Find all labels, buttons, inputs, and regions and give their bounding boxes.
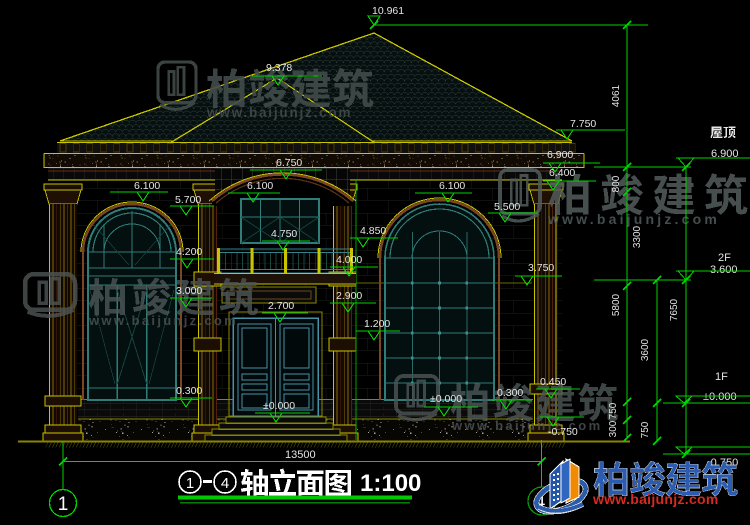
svg-text:3.000: 3.000 xyxy=(176,285,202,297)
svg-text:750: 750 xyxy=(640,421,651,438)
svg-text:www.baijunjz.com: www.baijunjz.com xyxy=(206,105,352,120)
svg-text:6.100: 6.100 xyxy=(439,180,465,192)
svg-text:9.378: 9.378 xyxy=(266,62,292,74)
svg-text:3.750: 3.750 xyxy=(528,262,554,274)
svg-text:2F: 2F xyxy=(718,252,731,264)
svg-text:2.900: 2.900 xyxy=(336,290,362,302)
svg-text:7.750: 7.750 xyxy=(570,118,596,130)
svg-text:6.400: 6.400 xyxy=(549,167,575,179)
svg-text:750: 750 xyxy=(608,402,619,419)
svg-text:4061: 4061 xyxy=(611,84,622,107)
svg-text:4.000: 4.000 xyxy=(336,254,362,266)
svg-text:4.750: 4.750 xyxy=(271,228,297,240)
svg-text:5.500: 5.500 xyxy=(494,201,520,213)
svg-text:-0.750: -0.750 xyxy=(548,426,578,438)
svg-text:4.200: 4.200 xyxy=(176,246,202,258)
svg-text:1: 1 xyxy=(58,494,69,515)
svg-text:1:100: 1:100 xyxy=(360,470,421,497)
svg-text:±0.000: ±0.000 xyxy=(263,400,295,412)
svg-text:2.700: 2.700 xyxy=(268,300,294,312)
svg-text:6.900: 6.900 xyxy=(547,149,573,161)
svg-text:4.850: 4.850 xyxy=(360,225,386,237)
svg-text:3.600: 3.600 xyxy=(710,264,738,276)
svg-text:±0.000: ±0.000 xyxy=(430,393,462,405)
svg-text:0.450: 0.450 xyxy=(540,376,566,388)
svg-text:7650: 7650 xyxy=(669,298,680,321)
svg-text:6.750: 6.750 xyxy=(276,157,302,169)
svg-text:5.700: 5.700 xyxy=(175,194,201,206)
svg-text:www.baijunjz.com: www.baijunjz.com xyxy=(88,313,238,328)
svg-text:800: 800 xyxy=(611,175,622,192)
svg-text:www.baijunjz.com: www.baijunjz.com xyxy=(592,491,719,507)
svg-text:1: 1 xyxy=(186,475,194,492)
svg-text:6.100: 6.100 xyxy=(134,180,160,192)
svg-text:13500: 13500 xyxy=(285,449,316,461)
svg-text:0.300: 0.300 xyxy=(176,385,202,397)
svg-text:±0.000: ±0.000 xyxy=(703,391,737,403)
svg-text:www.baijunjz.com: www.baijunjz.com xyxy=(451,418,603,433)
svg-text:6.100: 6.100 xyxy=(247,180,273,192)
svg-text:5800: 5800 xyxy=(611,293,622,316)
svg-text:3300: 3300 xyxy=(632,225,643,248)
svg-text:300: 300 xyxy=(608,420,619,437)
svg-text:www.baijunjz.com: www.baijunjz.com xyxy=(547,211,720,227)
svg-text:0.300: 0.300 xyxy=(497,387,523,399)
svg-text:1.200: 1.200 xyxy=(364,318,390,330)
svg-text:10.961: 10.961 xyxy=(372,5,404,17)
svg-text:3600: 3600 xyxy=(640,338,651,361)
svg-text:4: 4 xyxy=(221,475,229,492)
svg-text:1F: 1F xyxy=(715,371,728,383)
